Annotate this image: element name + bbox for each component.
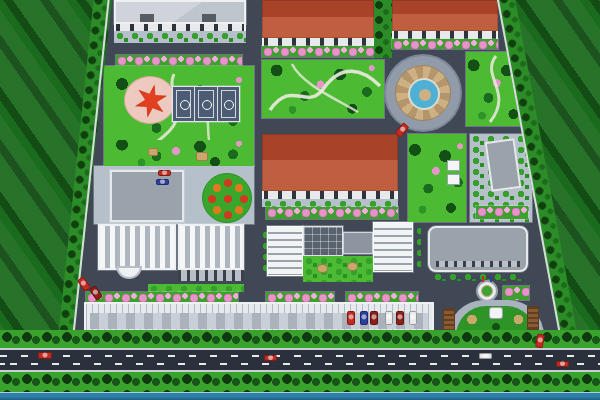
- red-workshop-2-roof: [392, 0, 498, 31]
- star-monument: [131, 81, 171, 121]
- lane-marking: [0, 355, 600, 357]
- ribbed-workshop-b: [178, 224, 244, 270]
- ribbed-workshop-a: [98, 224, 176, 270]
- mid-east-garden: [408, 134, 466, 222]
- entrance-sculpture: [490, 308, 502, 318]
- roadside-tree-row-north: [0, 330, 600, 348]
- west-lawn-strip: [104, 140, 254, 166]
- blossom-strip-east: [476, 206, 528, 219]
- riverside-canal: [0, 392, 600, 400]
- blossom-strip-central: [266, 207, 398, 219]
- small-fountain-green: [481, 285, 493, 297]
- carport-stalls: [90, 313, 428, 329]
- garden-pavilion: [148, 148, 158, 156]
- fountain-plaza-outer-ring: [386, 56, 460, 130]
- garden-structure: [447, 160, 460, 171]
- office-left-wing: [267, 226, 303, 276]
- tree-screen: [374, 0, 392, 58]
- bush-strip: [148, 284, 244, 292]
- red-workshop-3-bush-row: [262, 199, 398, 207]
- garden-structure: [447, 174, 460, 185]
- east-bush-row: [432, 272, 524, 281]
- main-road: [0, 348, 600, 372]
- office-bush-column: [260, 230, 267, 274]
- red-workshop-1-roof: [262, 0, 374, 38]
- aerial-site-plan: [0, 0, 600, 400]
- office-courtyard: [303, 256, 373, 282]
- courtyard-shrub: [347, 262, 358, 271]
- red-workshop-3-facade: [262, 191, 398, 199]
- fountain-plaza-paved-ring: [395, 65, 451, 121]
- workshop-entrance-canopy: [116, 266, 142, 279]
- pink-flower-bed: [503, 286, 529, 300]
- garden-path: [262, 60, 384, 118]
- rooftop-unit: [140, 14, 154, 22]
- basketball-courts: [172, 86, 240, 122]
- red-workshop-2-planters: [392, 39, 498, 49]
- east-gray-building-windows: [436, 261, 520, 267]
- small-east-annex: [485, 138, 522, 192]
- star-plaza: [124, 76, 176, 124]
- north-office-building-roof: [114, 0, 246, 24]
- east-gray-building: [428, 226, 528, 272]
- red-workshop-2-facade: [392, 31, 498, 39]
- lane-marking: [0, 363, 600, 365]
- red-workshop-3-roof: [262, 134, 398, 191]
- garden-pavilion: [196, 152, 208, 161]
- north-office-facade-windows: [114, 24, 246, 31]
- basketball-court: [173, 87, 194, 121]
- ribbed-workshop-b-front: [178, 270, 244, 281]
- entrance-gate-left: [443, 308, 455, 332]
- red-workshop-1-planters: [262, 46, 374, 57]
- small-fountain: [476, 280, 498, 302]
- roadside-tree-row-south: [0, 372, 600, 392]
- basketball-court: [217, 87, 239, 121]
- red-workshop-1-facade: [262, 38, 374, 46]
- gray-admin-building: [110, 170, 184, 222]
- flower-ring: [224, 195, 232, 203]
- office-right-wing: [373, 222, 413, 272]
- office-atrium-glass: [303, 226, 343, 256]
- rooftop-unit: [202, 14, 216, 22]
- basketball-court: [194, 87, 216, 121]
- fountain-flag-red: [482, 276, 484, 282]
- fountain-island: [419, 89, 431, 101]
- office-gray-block: [343, 232, 373, 254]
- central-garden: [262, 60, 384, 118]
- office-bush-column: [414, 226, 421, 272]
- entrance-gate-right: [527, 306, 539, 330]
- fountain-pool: [408, 78, 440, 110]
- courtyard-shrub: [317, 264, 328, 273]
- circular-flower-bed: [202, 173, 252, 223]
- north-office-bush-row: [114, 31, 246, 43]
- fountain-flag-blue: [490, 276, 492, 282]
